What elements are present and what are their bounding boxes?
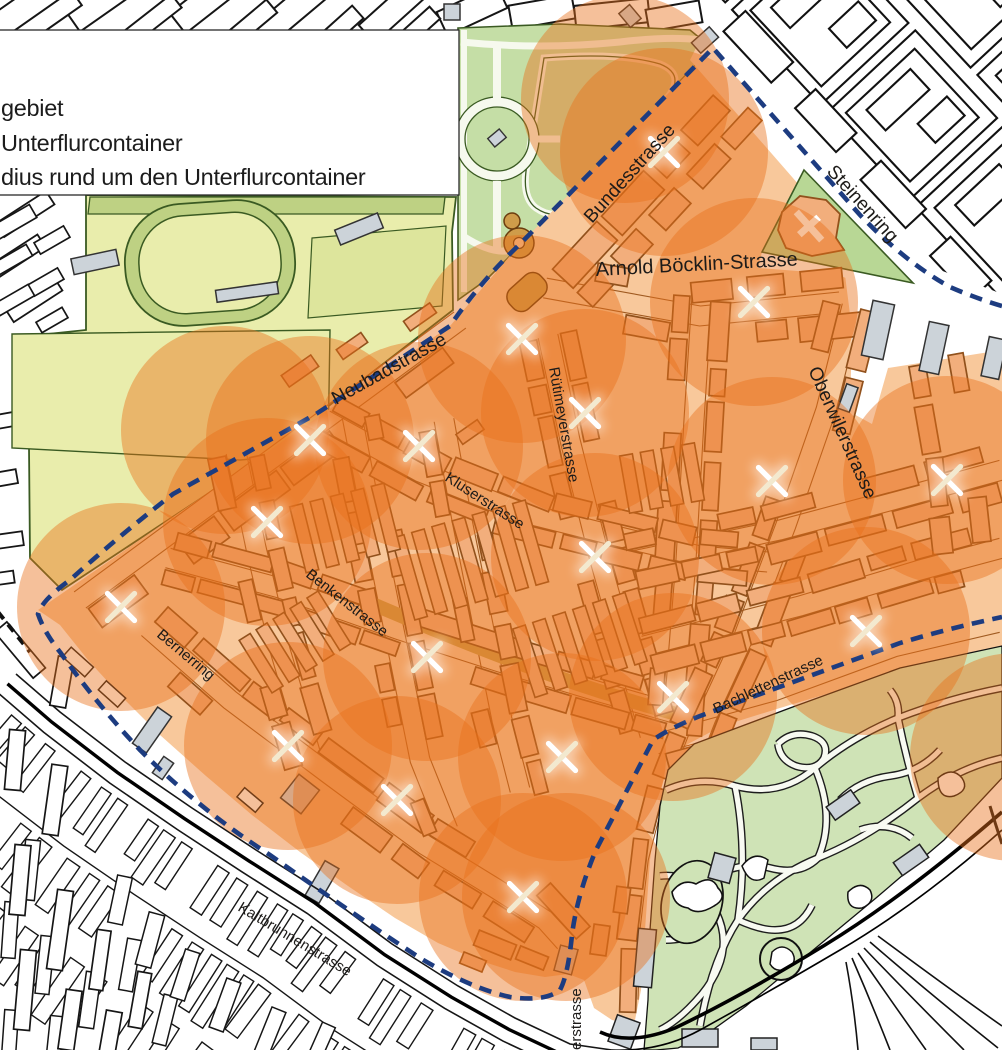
svg-text:erstrasse: erstrasse bbox=[568, 988, 585, 1050]
svg-text:gebiet: gebiet bbox=[1, 95, 64, 121]
svg-text:Unterflurcontainer: Unterflurcontainer bbox=[1, 130, 183, 156]
svg-text:dius rund um den Unterflurcont: dius rund um den Unterflurcontainer bbox=[1, 164, 366, 190]
